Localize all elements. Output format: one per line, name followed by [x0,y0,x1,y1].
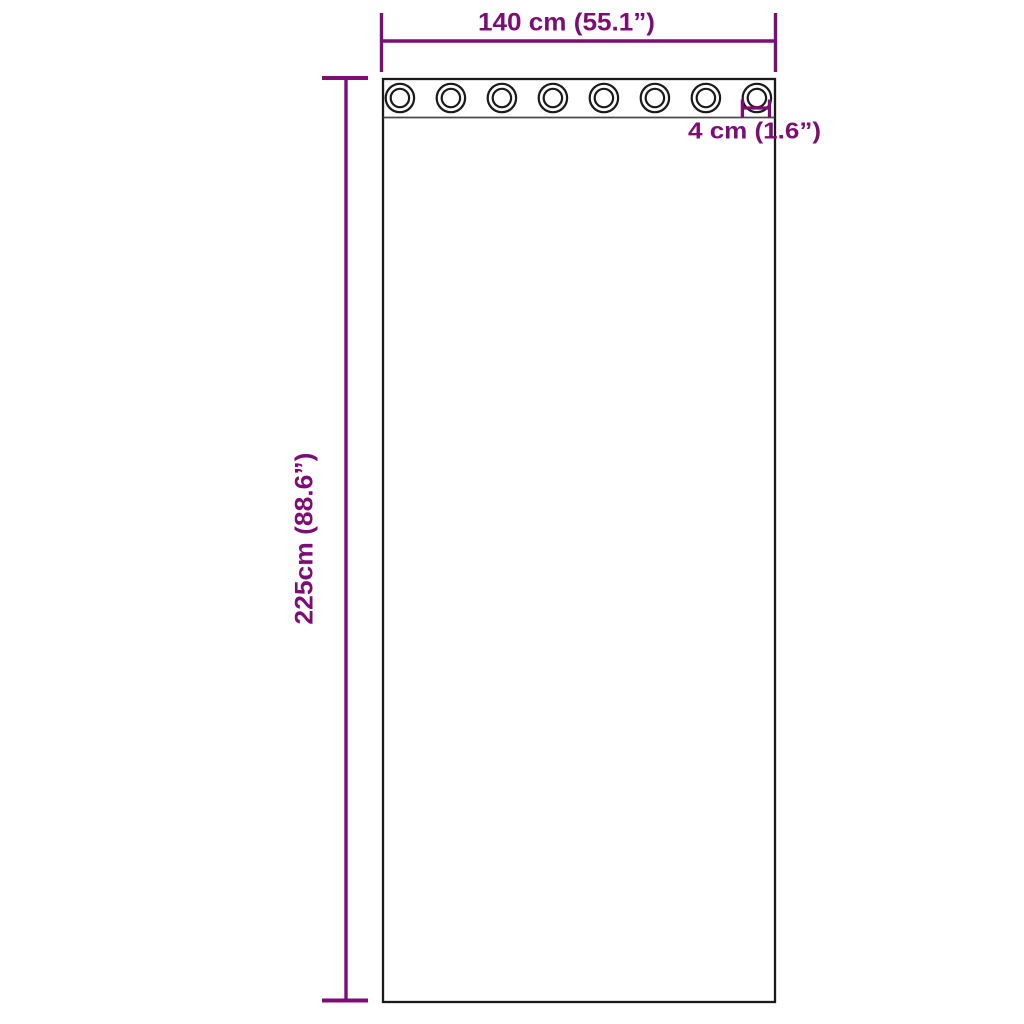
svg-text:225cm (88.6”): 225cm (88.6”) [291,453,319,625]
svg-text:4 cm (1.6”): 4 cm (1.6”) [688,117,821,143]
svg-text:140 cm (55.1”): 140 cm (55.1”) [478,8,655,36]
